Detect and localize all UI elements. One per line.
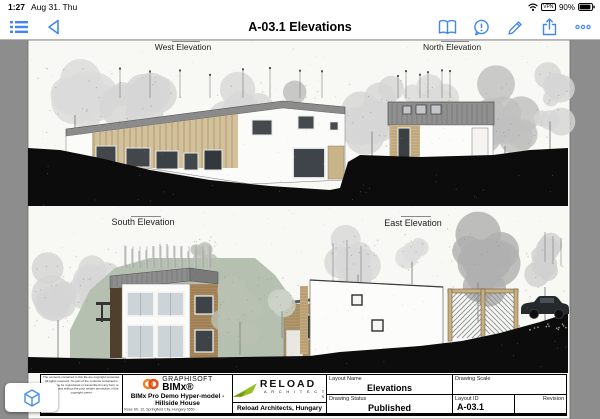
- battery-percent: 90%: [559, 3, 575, 12]
- south-elevation-title: South Elevation: [111, 217, 174, 227]
- battery-icon: [578, 3, 595, 11]
- graphisoft-logo-icon: [142, 378, 159, 390]
- report-problem-button[interactable]: [471, 18, 491, 36]
- graphisoft-cell: GRAPHISOFT BIMx® BIMx Pro Demo Hyper-mod…: [123, 375, 233, 413]
- share-icon: [542, 18, 557, 36]
- list-icon: [10, 20, 28, 34]
- drawing-scale-cell: Drawing Scale: [453, 375, 566, 394]
- west-elevation-title: West Elevation: [155, 42, 212, 52]
- drawing-viewport: [0, 40, 600, 419]
- reload-architects-sub: A R C H I T E C T S: [260, 389, 326, 399]
- drawing-sheet[interactable]: [0, 40, 600, 419]
- east-elevation-title: East Elevation: [384, 218, 442, 228]
- vpn-badge: VPN: [541, 3, 556, 11]
- back-icon: [47, 19, 60, 35]
- wifi-icon: [528, 3, 538, 11]
- more-icon: [575, 23, 591, 31]
- architect-firm: Reload Architects, Hungary: [233, 402, 326, 413]
- layout-name-cell: Layout Name Elevations: [327, 375, 453, 394]
- bimx-app-window: West Elevation North Elevation South Ele…: [0, 0, 600, 419]
- back-button[interactable]: [43, 18, 63, 36]
- bookmarks-button[interactable]: [437, 18, 457, 36]
- feedback-icon: [473, 19, 490, 36]
- open-3d-model-button[interactable]: [5, 383, 58, 412]
- toolbar: A-03.1 Elevations: [0, 14, 600, 40]
- project-name: BIMx Pro Demo Hyper-model - Hillside Hou…: [123, 392, 232, 408]
- layout-name-value: Elevations: [329, 383, 450, 393]
- layout-name-label: Layout Name: [329, 376, 450, 382]
- architect-cell: RELOAD A R C H I T E C T S Reload Archit…: [233, 375, 327, 413]
- drawing-status-cell: Drawing Status Published: [327, 395, 453, 414]
- status-bar: 1:27 Aug 31. Thu VPN 90%: [0, 0, 600, 14]
- layout-id-value: A-03.1: [455, 402, 512, 412]
- book-icon: [438, 19, 457, 35]
- pencil-icon: [507, 19, 524, 36]
- revision-cell: Revision: [515, 395, 566, 414]
- drawing-status-value: Published: [329, 403, 450, 413]
- project-address: Rose Str. 12, Springfield City, Hungary …: [123, 408, 214, 412]
- status-time: 1:27: [8, 2, 25, 12]
- drawing-status-label: Drawing Status: [329, 396, 450, 402]
- more-button[interactable]: [573, 18, 593, 36]
- drawing-scale-label: Drawing Scale: [455, 376, 564, 382]
- title-block: The contents contained in this file are …: [40, 374, 567, 416]
- cube-3d-icon: [22, 388, 42, 408]
- revision-label: Revision: [517, 396, 564, 402]
- share-button[interactable]: [539, 18, 559, 36]
- markup-button[interactable]: [505, 18, 525, 36]
- layout-list-button[interactable]: [9, 18, 29, 36]
- reload-wordmark: RELOAD: [260, 380, 326, 389]
- status-date: Aug 31. Thu: [31, 2, 77, 12]
- layout-id-cell: Layout ID A-03.1: [453, 395, 515, 414]
- bimx-product: BIMx®: [162, 383, 213, 392]
- north-elevation-title: North Elevation: [423, 42, 481, 52]
- reload-leaf-icon: [233, 382, 258, 398]
